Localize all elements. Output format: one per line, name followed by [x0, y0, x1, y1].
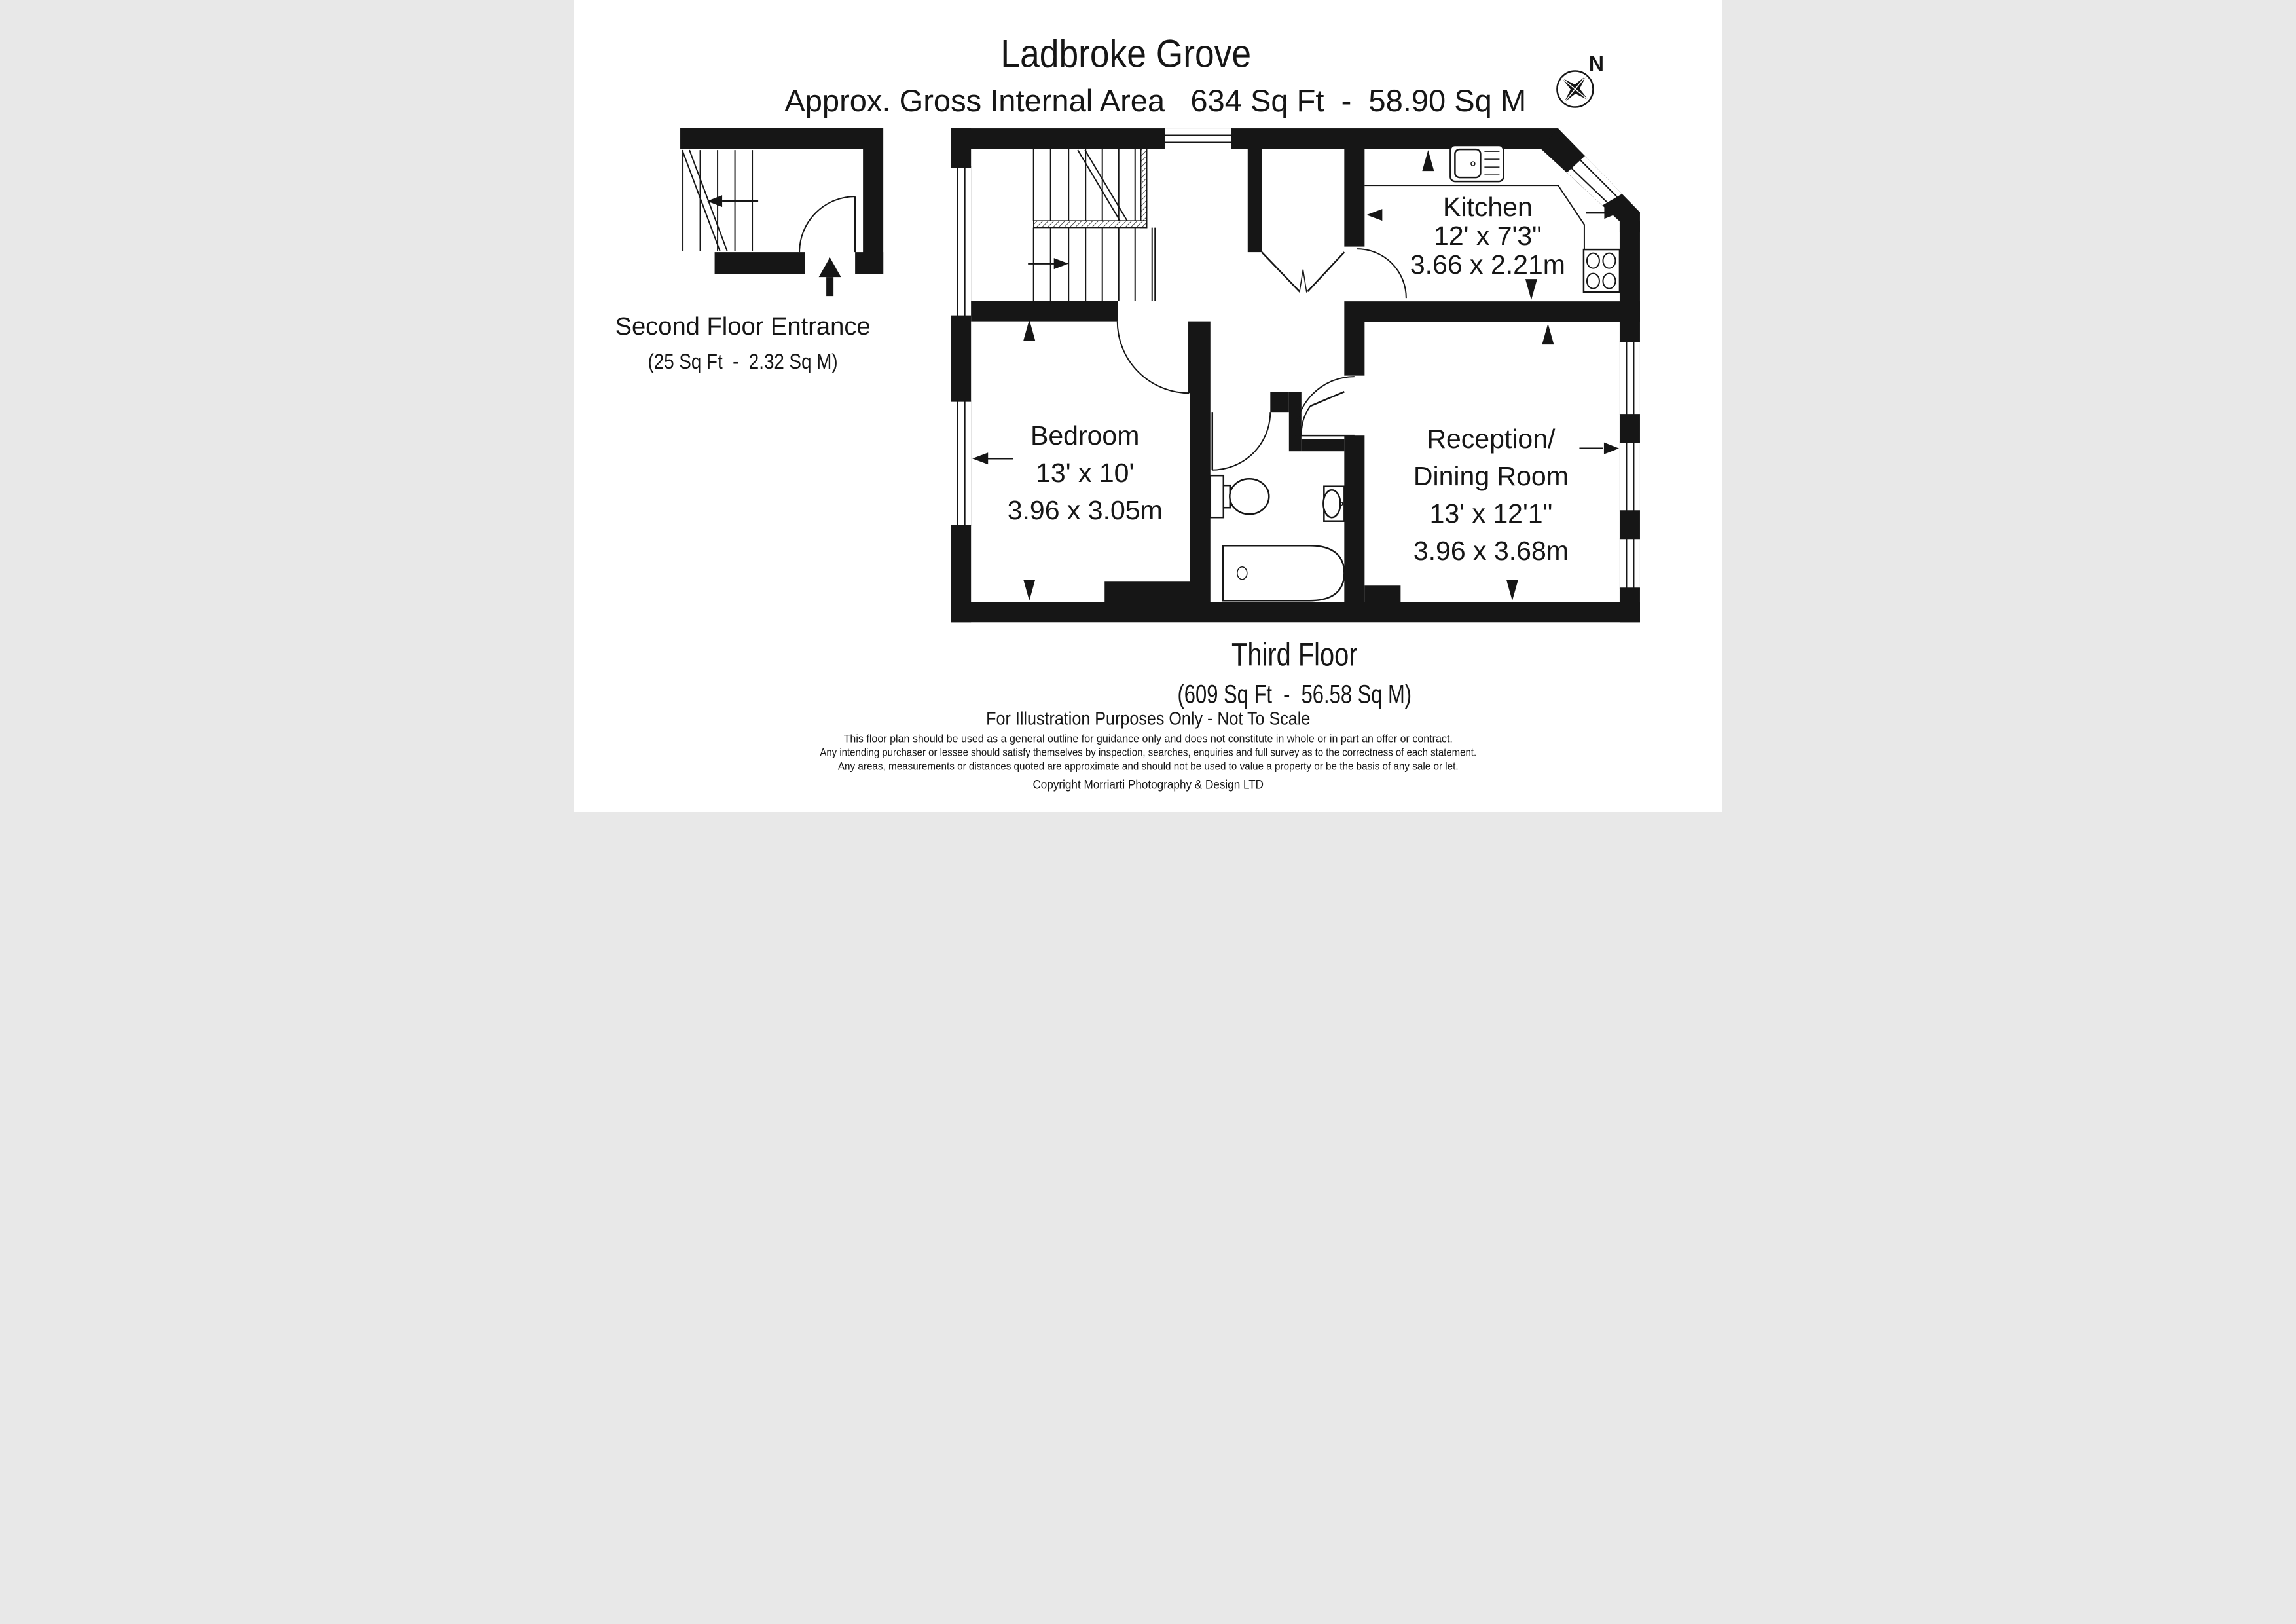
floor-plan-svg: Ladbroke Grove Approx. Gross Internal Ar…	[574, 0, 1722, 812]
window	[951, 401, 971, 526]
hob-icon	[1583, 249, 1619, 292]
bathtub-icon	[1222, 545, 1344, 600]
reception-imperial: 13' x 12'1"	[1429, 498, 1552, 528]
kitchen-metric: 3.66 x 2.21m	[1410, 249, 1565, 280]
wall-bathroom-top-stub	[1270, 392, 1289, 412]
entrance-name: Second Floor Entrance	[615, 313, 870, 341]
entrance-area: (25 Sq Ft - 2.32 Sq M)	[647, 350, 837, 373]
disclaimer-line-2: Any intending purchaser or lessee should…	[820, 746, 1476, 758]
window	[1619, 442, 1639, 511]
toilet-icon	[1210, 475, 1269, 517]
stair-rail	[1140, 149, 1146, 228]
wall-kitchen-bottom	[1344, 301, 1640, 322]
disclaimer-line-3: Any areas, measurements or distances quo…	[837, 760, 1458, 772]
wall-bottom	[951, 602, 1640, 622]
page-title: Ladbroke Grove	[1000, 32, 1251, 76]
bedroom-imperial: 13' x 10'	[1036, 458, 1134, 488]
window	[1619, 538, 1639, 588]
illustration-note: For Illustration Purposes Only - Not To …	[986, 708, 1310, 728]
north-label: N	[1588, 52, 1603, 75]
window	[951, 167, 971, 316]
floor-plan-page: Ladbroke Grove Approx. Gross Internal Ar…	[574, 0, 1722, 812]
floor-area: (609 Sq Ft - 56.58 Sq M)	[1177, 680, 1412, 709]
sink-icon	[1450, 145, 1503, 181]
chimney-breast	[1104, 581, 1190, 602]
paper-background	[574, 0, 1722, 812]
wall-reception-upper	[1344, 322, 1364, 376]
wall-step	[1364, 585, 1400, 602]
wall-nook-left	[1288, 392, 1301, 451]
bedroom-metric: 3.96 x 3.05m	[1007, 495, 1162, 525]
window	[1164, 128, 1231, 149]
reception-line1: Reception/	[1427, 424, 1556, 454]
stair-rail	[1033, 221, 1146, 228]
kitchen-imperial: 12' x 7'3"	[1434, 221, 1542, 251]
floor-name: Third Floor	[1231, 636, 1358, 673]
bedroom-name: Bedroom	[1030, 420, 1139, 451]
wall-reception-lower	[1344, 435, 1364, 602]
kitchen-name: Kitchen	[1443, 192, 1533, 222]
washbasin-icon	[1323, 487, 1344, 521]
double-door-jamb	[1247, 149, 1262, 252]
reception-line2: Dining Room	[1413, 461, 1568, 491]
reception-metric: 3.96 x 3.68m	[1413, 536, 1568, 566]
window	[1619, 341, 1639, 415]
wall-nook-bottom	[1301, 439, 1344, 451]
wall-bathroom-left	[1190, 322, 1210, 602]
copyright: Copyright Morriarti Photography & Design…	[1032, 778, 1264, 792]
wall-hall-stub	[1344, 149, 1364, 247]
page-subtitle: Approx. Gross Internal Area 634 Sq Ft - …	[784, 84, 1526, 119]
wall-bedroom-top	[971, 301, 1118, 322]
disclaimer-line-1: This floor plan should be used as a gene…	[843, 732, 1452, 745]
